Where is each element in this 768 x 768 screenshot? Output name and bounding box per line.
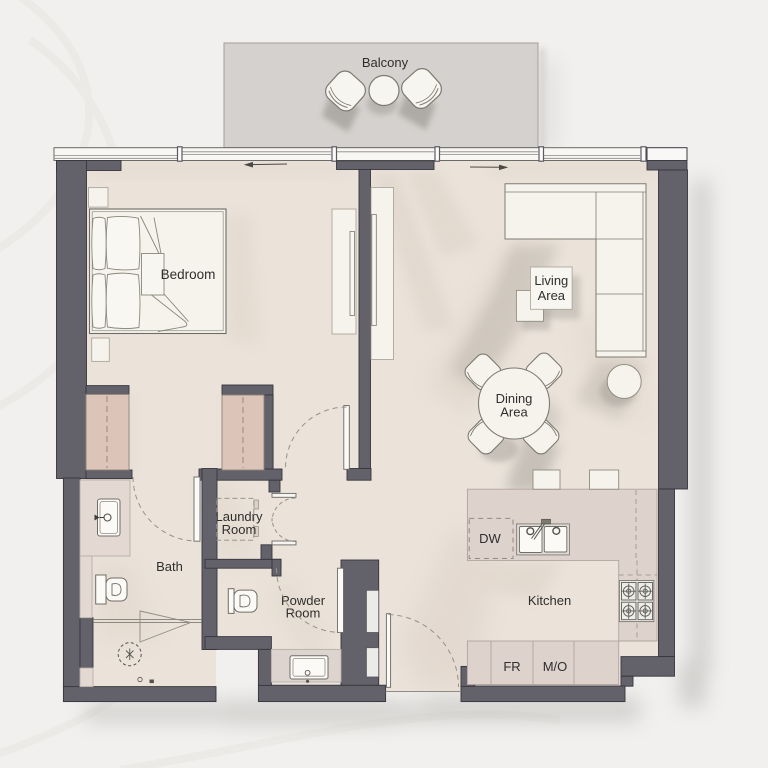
svg-text:FR: FR <box>503 659 520 674</box>
svg-text:DW: DW <box>479 531 501 546</box>
svg-text:Kitchen: Kitchen <box>528 593 571 608</box>
svg-text:Area: Area <box>500 405 528 420</box>
svg-text:Room: Room <box>222 522 257 537</box>
svg-text:Room: Room <box>286 606 321 621</box>
svg-text:Bath: Bath <box>156 559 183 574</box>
svg-text:Area: Area <box>538 288 566 303</box>
svg-text:Balcony: Balcony <box>362 55 409 70</box>
svg-text:Bedroom: Bedroom <box>161 267 216 282</box>
svg-text:M/O: M/O <box>543 659 568 674</box>
svg-text:Living: Living <box>534 273 568 288</box>
